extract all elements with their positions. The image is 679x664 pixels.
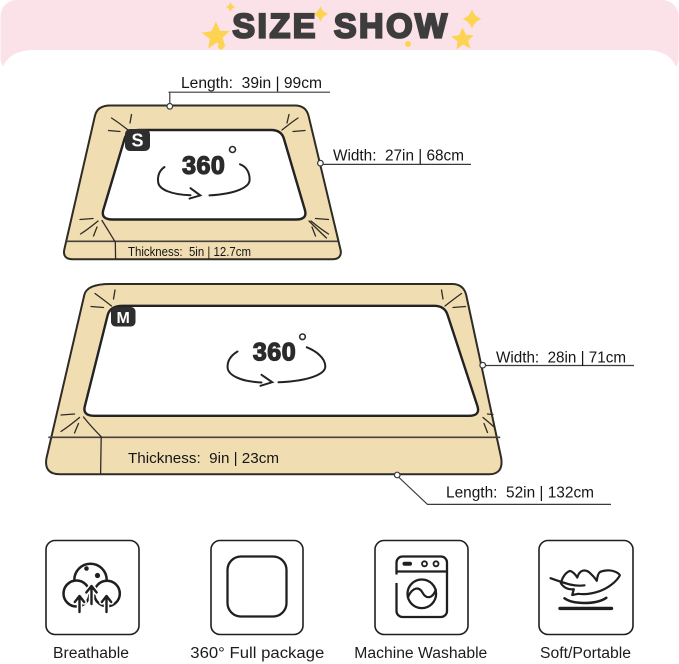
svg-text:360° Full package: 360° Full package [190, 645, 324, 662]
svg-text:360: 360 [253, 339, 296, 367]
svg-text:Width: 27in | 68cm: Width: 27in | 68cm [333, 148, 464, 165]
svg-text:S: S [131, 131, 143, 151]
svg-text:360: 360 [182, 152, 225, 180]
svg-text:M: M [117, 310, 130, 327]
svg-text:Length: 39in | 99cm: Length: 39in | 99cm [181, 75, 322, 92]
svg-text:Machine Washable: Machine Washable [354, 645, 487, 662]
svg-text:Width: 28in | 71cm: Width: 28in | 71cm [496, 350, 626, 367]
svg-text:Thickness: 9in | 23cm: Thickness: 9in | 23cm [128, 451, 279, 467]
svg-text:Thickness: 5in | 12.7cm: Thickness: 5in | 12.7cm [128, 245, 251, 259]
svg-text:Breathable: Breathable [53, 645, 129, 662]
svg-text:Length: 52in | 132cm: Length: 52in | 132cm [446, 485, 594, 502]
svg-text:Soft/Portable: Soft/Portable [540, 645, 631, 662]
svg-text:SIZE SHOW: SIZE SHOW [232, 8, 449, 46]
